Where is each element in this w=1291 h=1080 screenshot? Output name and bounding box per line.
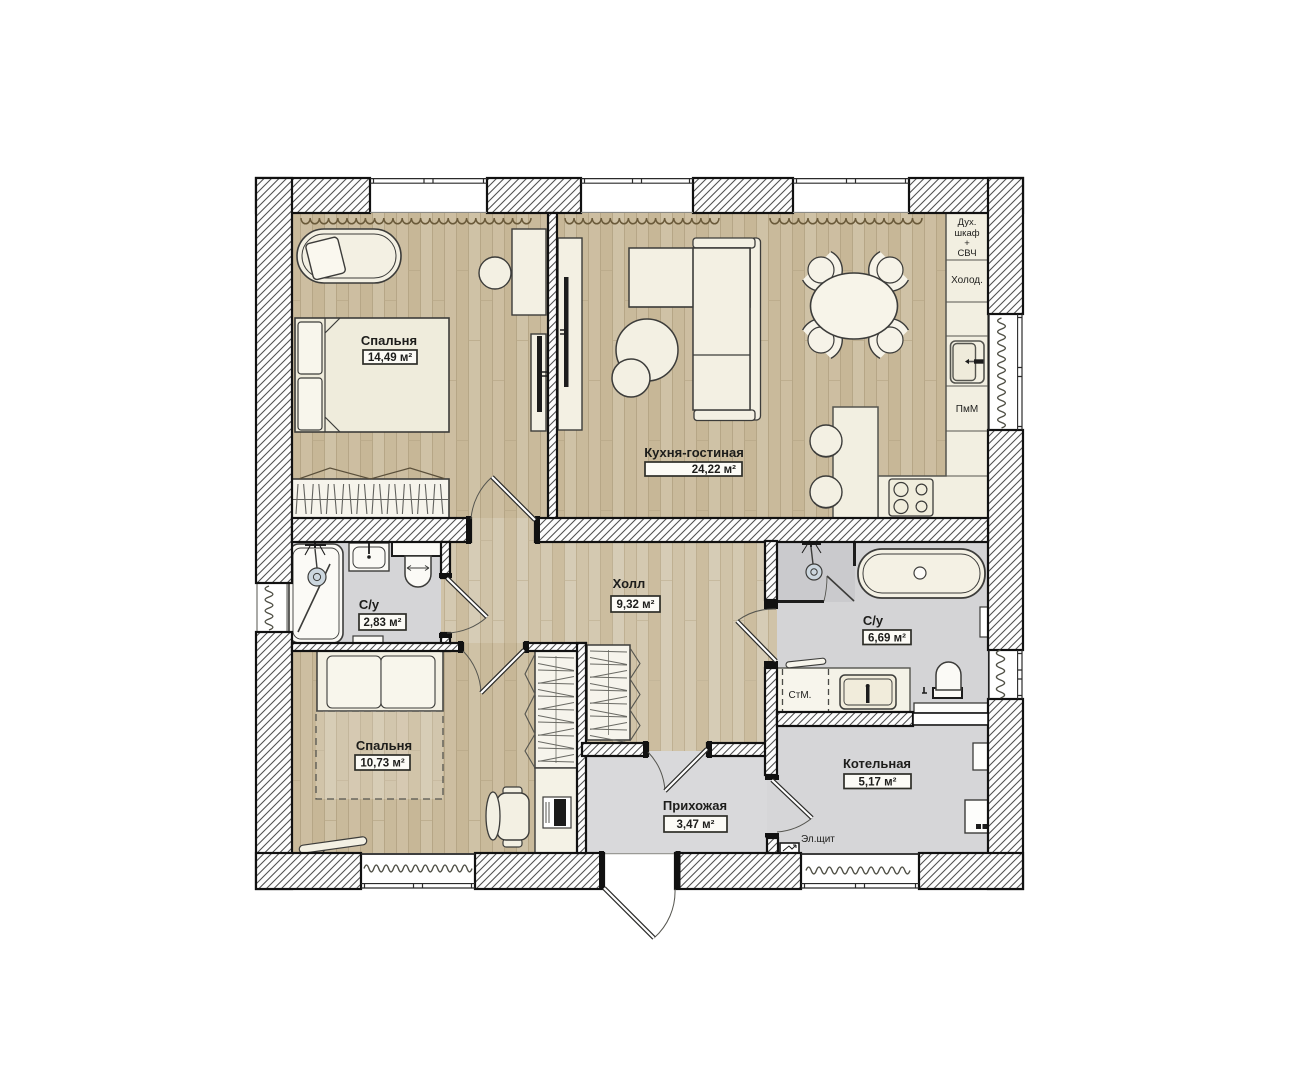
svg-text:Дух.: Дух.	[958, 217, 977, 228]
svg-text:Спальня: Спальня	[361, 333, 417, 348]
svg-text:С/у: С/у	[359, 597, 380, 612]
svg-text:СтМ.: СтМ.	[789, 690, 812, 701]
svg-text:Холод.: Холод.	[951, 275, 983, 286]
svg-text:Котельная: Котельная	[843, 756, 911, 771]
svg-text:14,49 м²: 14,49 м²	[368, 352, 412, 364]
svg-text:3,47 м²: 3,47 м²	[677, 819, 715, 831]
svg-text:Кухня-гостиная: Кухня-гостиная	[644, 445, 744, 460]
svg-text:9,32 м²: 9,32 м²	[617, 599, 655, 611]
svg-text:СВЧ: СВЧ	[957, 248, 976, 259]
svg-text:24,22 м²: 24,22 м²	[692, 464, 736, 476]
svg-text:10,73 м²: 10,73 м²	[360, 758, 404, 770]
svg-text:Прихожая: Прихожая	[663, 798, 727, 813]
svg-text:С/у: С/у	[863, 613, 884, 628]
svg-text:6,69 м²: 6,69 м²	[868, 632, 906, 644]
svg-text:Спальня: Спальня	[356, 738, 412, 753]
svg-text:5,17 м²: 5,17 м²	[859, 776, 897, 788]
svg-text:Эл.щит: Эл.щит	[801, 834, 835, 845]
svg-text:Холл: Холл	[613, 576, 646, 591]
svg-text:2,83 м²: 2,83 м²	[364, 617, 402, 629]
svg-text:ПмМ: ПмМ	[956, 404, 978, 415]
